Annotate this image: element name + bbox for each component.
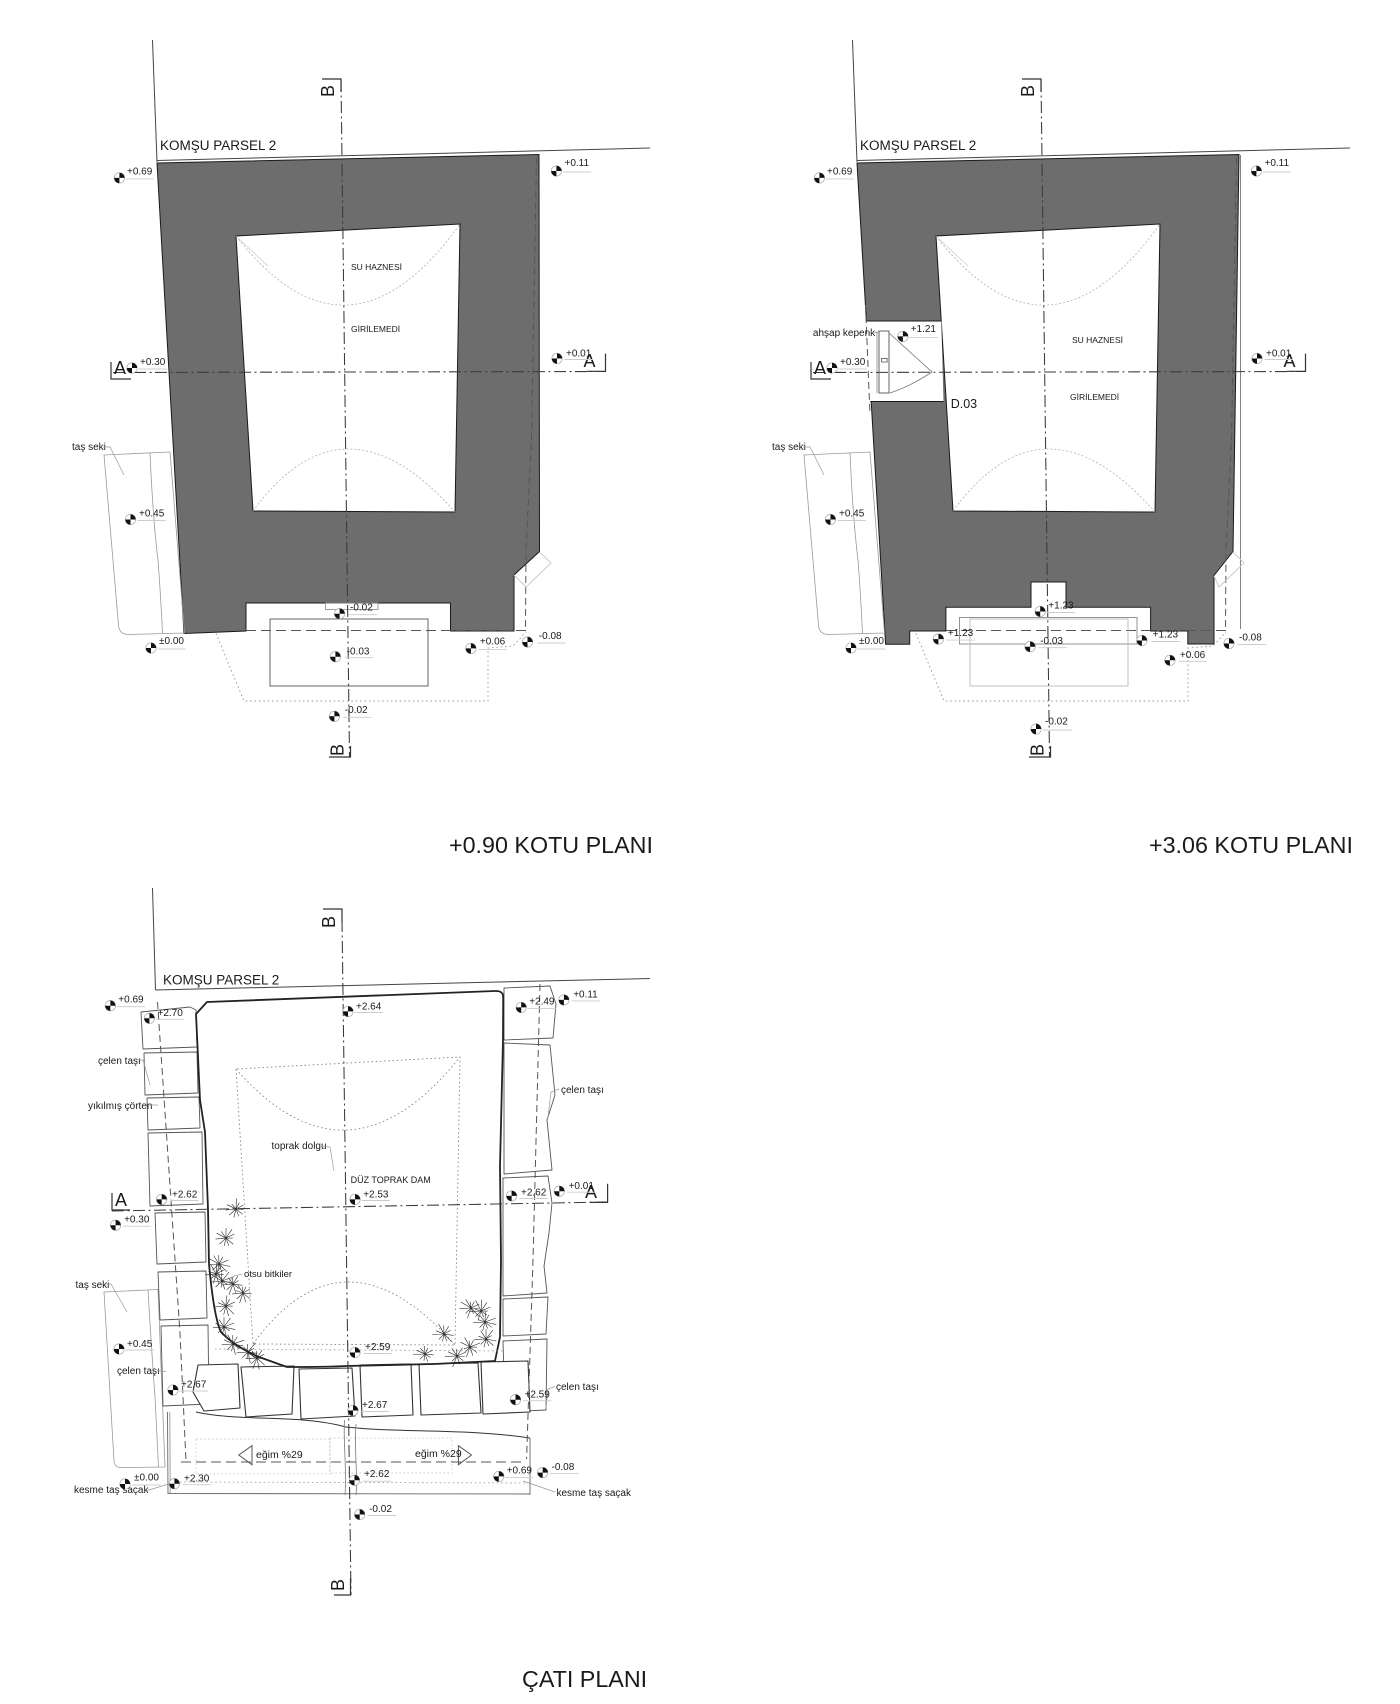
svg-text:-0.02: -0.02 <box>345 705 368 716</box>
svg-text:+0.69: +0.69 <box>127 167 153 178</box>
svg-text:+2.53: +2.53 <box>363 1190 389 1201</box>
svg-text:B: B <box>1018 85 1038 97</box>
svg-text:±0.00: ±0.00 <box>134 1473 159 1484</box>
svg-text:+2.62: +2.62 <box>172 1190 198 1201</box>
svg-text:B: B <box>318 85 338 97</box>
svg-text:+0.01: +0.01 <box>1266 349 1292 360</box>
svg-text:+0.06: +0.06 <box>480 637 506 648</box>
svg-text:+1.21: +1.21 <box>911 324 937 335</box>
svg-text:+0.90 KOTU PLANI: +0.90 KOTU PLANI <box>449 832 653 858</box>
svg-text:+2.70: +2.70 <box>158 1008 184 1019</box>
svg-text:+3.06 KOTU PLANI: +3.06 KOTU PLANI <box>1149 832 1353 858</box>
svg-text:eğim %29: eğim %29 <box>415 1448 462 1460</box>
svg-text:-0.02: -0.02 <box>350 603 373 614</box>
svg-text:A: A <box>114 358 126 378</box>
svg-text:+2.49: +2.49 <box>529 997 555 1008</box>
svg-text:+2.67: +2.67 <box>181 1380 207 1391</box>
svg-text:+2.64: +2.64 <box>356 1002 382 1013</box>
svg-text:taş seki: taş seki <box>72 442 106 453</box>
svg-text:-0.03: -0.03 <box>1040 636 1063 647</box>
svg-text:A: A <box>115 1190 127 1210</box>
svg-text:+2.62: +2.62 <box>521 1188 547 1199</box>
svg-text:GİRİLEMEDİ: GİRİLEMEDİ <box>1070 392 1119 402</box>
svg-text:toprak dolgu: toprak dolgu <box>272 1141 327 1152</box>
svg-text:+0.45: +0.45 <box>839 508 865 519</box>
svg-text:-0.08: -0.08 <box>539 631 562 642</box>
svg-text:çelen taşı: çelen taşı <box>556 1382 599 1393</box>
svg-text:kesme taş saçak: kesme taş saçak <box>74 1485 149 1496</box>
svg-text:+0.69: +0.69 <box>827 167 853 178</box>
svg-text:B: B <box>319 916 339 928</box>
svg-text:+0.45: +0.45 <box>127 1339 153 1350</box>
svg-text:taş seki: taş seki <box>76 1280 110 1291</box>
svg-text:+0.11: +0.11 <box>565 158 590 169</box>
svg-text:+2.59: +2.59 <box>365 1342 391 1353</box>
svg-text:otsu bitkiler: otsu bitkiler <box>244 1269 292 1280</box>
svg-text:+0.01: +0.01 <box>566 349 592 360</box>
svg-text:-0.08: -0.08 <box>552 1462 575 1473</box>
svg-text:-0.03: -0.03 <box>347 646 370 657</box>
svg-text:çelen taşı: çelen taşı <box>98 1056 141 1067</box>
svg-text:B: B <box>327 744 347 756</box>
svg-text:+0.69: +0.69 <box>118 995 144 1006</box>
svg-text:B: B <box>328 1579 348 1591</box>
svg-text:+1.23: +1.23 <box>948 628 974 639</box>
svg-text:SU HAZNESİ: SU HAZNESİ <box>351 262 402 272</box>
svg-text:+0.11: +0.11 <box>1265 158 1290 169</box>
svg-text:+0.01: +0.01 <box>569 1181 595 1192</box>
svg-text:ÇATI PLANI: ÇATI PLANI <box>522 1666 647 1692</box>
svg-text:taş seki: taş seki <box>772 442 806 453</box>
svg-text:kesme taş saçak: kesme taş saçak <box>557 1488 632 1499</box>
svg-text:B: B <box>1027 744 1047 756</box>
svg-text:+2.30: +2.30 <box>184 1474 210 1485</box>
svg-text:GİRİLEMEDİ: GİRİLEMEDİ <box>351 324 400 334</box>
svg-text:SU HAZNESİ: SU HAZNESİ <box>1072 335 1123 345</box>
svg-text:-0.02: -0.02 <box>369 1504 392 1515</box>
svg-text:+2.59: +2.59 <box>525 1390 551 1401</box>
svg-text:-0.02: -0.02 <box>1045 717 1068 728</box>
svg-text:DÜZ TOPRAK DAM: DÜZ TOPRAK DAM <box>351 1175 431 1185</box>
svg-text:+1.23: +1.23 <box>1048 601 1074 612</box>
svg-text:çelen taşı: çelen taşı <box>117 1366 160 1377</box>
svg-text:+0.30: +0.30 <box>840 357 866 368</box>
svg-text:+0.30: +0.30 <box>124 1215 150 1226</box>
svg-text:A: A <box>814 358 826 378</box>
svg-text:çelen taşı: çelen taşı <box>561 1085 604 1096</box>
svg-text:+0.69: +0.69 <box>507 1466 533 1477</box>
svg-text:D.03: D.03 <box>951 397 977 411</box>
svg-text:yıkılmış çörten: yıkılmış çörten <box>88 1101 152 1112</box>
svg-text:KOMŞU PARSEL 2: KOMŞU PARSEL 2 <box>163 973 279 988</box>
svg-text:KOMŞU PARSEL 2: KOMŞU PARSEL 2 <box>860 138 976 153</box>
svg-text:+2.62: +2.62 <box>364 1469 390 1480</box>
svg-text:±0.00: ±0.00 <box>159 636 184 647</box>
svg-text:+0.30: +0.30 <box>140 357 166 368</box>
svg-text:+1.23: +1.23 <box>1153 630 1179 641</box>
svg-text:eğim %29: eğim %29 <box>256 1449 303 1461</box>
svg-text:+0.45: +0.45 <box>139 508 165 519</box>
svg-text:±0.00: ±0.00 <box>859 636 884 647</box>
svg-text:+0.11: +0.11 <box>573 990 598 1001</box>
svg-text:KOMŞU PARSEL 2: KOMŞU PARSEL 2 <box>160 138 276 153</box>
svg-text:ahşap kepenk: ahşap kepenk <box>813 328 876 339</box>
svg-text:+0.06: +0.06 <box>1180 650 1206 661</box>
svg-text:-0.08: -0.08 <box>1239 633 1262 644</box>
svg-text:+2.67: +2.67 <box>362 1400 388 1411</box>
